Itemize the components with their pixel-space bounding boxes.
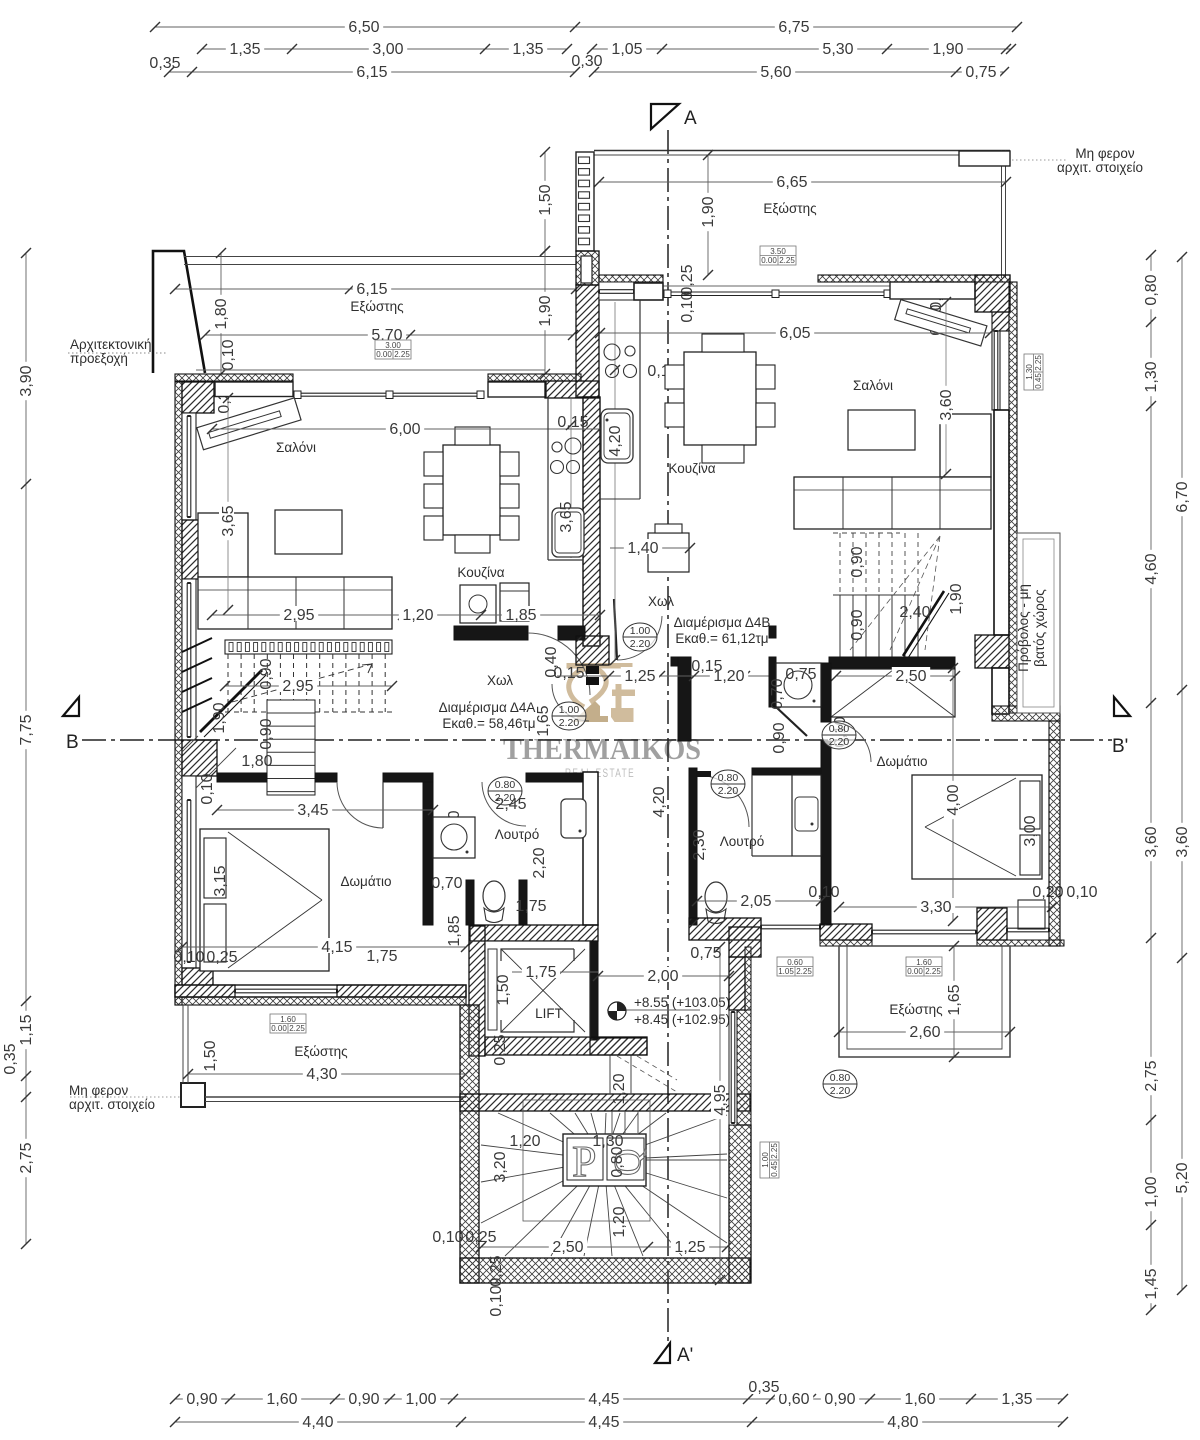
svg-text:3,90: 3,90 (18, 365, 35, 396)
svg-text:1,25: 1,25 (674, 1239, 705, 1256)
svg-text:7,75: 7,75 (18, 714, 35, 745)
svg-text:1,50: 1,50 (495, 974, 512, 1005)
svg-text:0.80: 0.80 (495, 779, 516, 791)
svg-text:3,45: 3,45 (297, 802, 328, 819)
svg-text:3,65: 3,65 (220, 505, 237, 536)
svg-text:1,60: 1,60 (266, 1391, 297, 1408)
svg-text:6,75: 6,75 (778, 19, 809, 36)
svg-text:1.60: 1.60 (916, 958, 932, 967)
svg-text:6,65: 6,65 (776, 174, 807, 191)
svg-text:1,00: 1,00 (1143, 1176, 1160, 1207)
svg-text:1,75: 1,75 (525, 964, 556, 981)
svg-text:1,90: 1,90 (537, 295, 554, 326)
svg-text:5,60: 5,60 (760, 64, 791, 81)
svg-text:1.00: 1.00 (630, 625, 651, 637)
svg-text:1.00: 1.00 (761, 1152, 770, 1168)
svg-text:1,80: 1,80 (241, 753, 272, 770)
svg-text:Εξώστης: Εξώστης (889, 1002, 943, 1017)
svg-text:4,80: 4,80 (887, 1414, 918, 1431)
svg-text:0.45: 0.45 (770, 1161, 779, 1177)
svg-text:0.60: 0.60 (787, 958, 803, 967)
svg-text:Διαμέρισμα Δ4Β: Διαμέρισμα Δ4Β (674, 615, 771, 630)
svg-text:4,45: 4,45 (588, 1414, 619, 1431)
svg-text:0,10: 0,10 (220, 339, 237, 370)
svg-text:Δωμάτιο: Δωμάτιο (877, 754, 928, 769)
svg-text:6,15: 6,15 (356, 281, 387, 298)
svg-text:2.25: 2.25 (394, 350, 410, 359)
svg-text:1,90: 1,90 (211, 702, 228, 733)
svg-text:0,10: 0,10 (432, 1229, 463, 1246)
svg-text:0,80: 0,80 (1143, 274, 1160, 305)
svg-text:2.20: 2.20 (630, 638, 651, 650)
svg-text:Λουτρό: Λουτρό (720, 834, 764, 849)
svg-text:1,75: 1,75 (366, 948, 397, 965)
svg-text:2.20: 2.20 (559, 717, 580, 729)
svg-text:3,60: 3,60 (938, 389, 955, 420)
svg-text:Εξώστης: Εξώστης (350, 299, 404, 314)
svg-text:βατός χώρος: βατός χώρος (1032, 589, 1047, 667)
svg-text:2.25: 2.25 (925, 967, 941, 976)
svg-text:6,05: 6,05 (779, 325, 810, 342)
svg-text:1,20: 1,20 (402, 607, 433, 624)
svg-text:5,20: 5,20 (1174, 1162, 1191, 1193)
svg-text:2.25: 2.25 (770, 1143, 779, 1159)
svg-text:A: A (684, 108, 697, 129)
svg-text:0,15: 0,15 (691, 658, 722, 675)
svg-text:2,95: 2,95 (283, 607, 314, 624)
svg-text:Σαλόνι: Σαλόνι (853, 378, 893, 393)
svg-text:2,30: 2,30 (691, 829, 708, 860)
svg-text:1,20: 1,20 (611, 1073, 628, 1104)
svg-text:1,15: 1,15 (18, 1014, 35, 1045)
svg-text:4,40: 4,40 (302, 1414, 333, 1431)
svg-text:1,50: 1,50 (202, 1040, 219, 1071)
svg-text:2,40: 2,40 (899, 604, 930, 621)
svg-text:0,40: 0,40 (543, 646, 560, 677)
svg-text:2,20: 2,20 (531, 847, 548, 878)
svg-text:Μη φερον: Μη φερον (1075, 146, 1134, 161)
svg-text:0,35: 0,35 (2, 1043, 19, 1074)
svg-text:0,90: 0,90 (186, 1391, 217, 1408)
svg-text:Χωλ: Χωλ (648, 594, 674, 609)
svg-text:0,75: 0,75 (785, 666, 816, 683)
svg-text:Πρόβολος - μη: Πρόβολος - μη (1016, 584, 1031, 672)
svg-text:Εξώστης: Εξώστης (294, 1044, 348, 1059)
svg-text:3,60: 3,60 (1143, 826, 1160, 857)
svg-text:2.25: 2.25 (1034, 355, 1043, 371)
svg-text:0,90: 0,90 (849, 546, 866, 577)
svg-text:2.25: 2.25 (779, 256, 795, 265)
svg-text:0,10: 0,10 (488, 1285, 505, 1316)
svg-text:1,20: 1,20 (509, 1133, 540, 1150)
svg-text:1.30: 1.30 (1025, 364, 1034, 380)
svg-text:1,05: 1,05 (611, 41, 642, 58)
svg-text:6,50: 6,50 (348, 19, 379, 36)
svg-text:0,25: 0,25 (206, 949, 237, 966)
svg-text:Χωλ: Χωλ (487, 673, 513, 688)
svg-text:1,40: 1,40 (627, 540, 658, 557)
svg-text:2,05: 2,05 (740, 893, 771, 910)
svg-text:1,25: 1,25 (624, 668, 655, 685)
svg-text:6,15: 6,15 (356, 64, 387, 81)
svg-text:0,25: 0,25 (679, 264, 696, 295)
svg-text:3,65: 3,65 (558, 501, 575, 532)
svg-text:Εκαθ.= 58,46τμ: Εκαθ.= 58,46τμ (442, 716, 535, 731)
svg-text:1,35: 1,35 (1001, 1391, 1032, 1408)
svg-text:1,90: 1,90 (948, 583, 965, 614)
svg-text:0,10: 0,10 (1066, 884, 1097, 901)
svg-text:2.20: 2.20 (829, 736, 850, 748)
svg-text:1,60: 1,60 (904, 1391, 935, 1408)
svg-text:4,60: 4,60 (1143, 553, 1160, 584)
svg-text:0,70: 0,70 (431, 875, 462, 892)
svg-text:2,75: 2,75 (1143, 1060, 1160, 1091)
svg-text:2.25: 2.25 (289, 1024, 305, 1033)
svg-text:0,90: 0,90 (348, 1391, 379, 1408)
svg-text:0,25: 0,25 (488, 1255, 505, 1286)
svg-text:0,35: 0,35 (149, 55, 180, 72)
svg-text:0.00: 0.00 (907, 967, 923, 976)
svg-text:0,10: 0,10 (173, 949, 204, 966)
svg-text:2.25: 2.25 (796, 967, 812, 976)
svg-text:2,45: 2,45 (495, 796, 526, 813)
svg-text:1,90: 1,90 (700, 196, 717, 227)
svg-text:1.00: 1.00 (559, 704, 580, 716)
svg-text:3,00: 3,00 (1022, 815, 1039, 846)
svg-text:1,65: 1,65 (535, 705, 552, 736)
svg-text:0,75: 0,75 (690, 945, 721, 962)
svg-text:1,20: 1,20 (611, 1206, 628, 1237)
svg-text:1,85: 1,85 (505, 607, 536, 624)
svg-text:1,90: 1,90 (932, 41, 963, 58)
svg-text:1,80: 1,80 (213, 298, 230, 329)
svg-text:2.20: 2.20 (830, 1085, 851, 1097)
svg-text:1,65: 1,65 (946, 984, 963, 1015)
svg-text:4,15: 4,15 (321, 939, 352, 956)
svg-text:Αρχιτεκτονική: Αρχιτεκτονική (70, 337, 152, 352)
svg-text:3,15: 3,15 (212, 865, 229, 896)
svg-text:+8.45 (+102.95): +8.45 (+102.95) (634, 1012, 730, 1027)
svg-text:1,85: 1,85 (446, 915, 463, 946)
svg-text:3.50: 3.50 (770, 247, 786, 256)
svg-text:Δωμάτιο: Δωμάτιο (341, 874, 392, 889)
svg-text:0,90: 0,90 (849, 609, 866, 640)
svg-text:5,30: 5,30 (822, 41, 853, 58)
svg-text:B: B (66, 732, 79, 753)
svg-text:προεξοχή: προεξοχή (70, 351, 128, 366)
svg-text:0,90: 0,90 (258, 658, 275, 689)
svg-text:2,95: 2,95 (282, 678, 313, 695)
svg-text:Κουζίνα: Κουζίνα (457, 565, 504, 580)
svg-text:Λουτρό: Λουτρό (495, 827, 539, 842)
svg-text:3,30: 3,30 (920, 899, 951, 916)
svg-text:1,35: 1,35 (229, 41, 260, 58)
svg-text:3,00: 3,00 (372, 41, 403, 58)
svg-text:0.00: 0.00 (271, 1024, 287, 1033)
svg-text:0,35: 0,35 (748, 1379, 779, 1396)
svg-text:1.05: 1.05 (778, 967, 794, 976)
svg-text:3,20: 3,20 (492, 1151, 509, 1182)
svg-text:A': A' (677, 1345, 693, 1366)
svg-text:αρχιτ. στοιχείο: αρχιτ. στοιχείο (1057, 160, 1143, 175)
svg-text:1,30: 1,30 (1143, 361, 1160, 392)
svg-text:4,20: 4,20 (651, 786, 668, 817)
svg-text:0,90: 0,90 (258, 718, 275, 749)
svg-text:2,50: 2,50 (895, 668, 926, 685)
svg-text:1.60: 1.60 (280, 1015, 296, 1024)
svg-text:0,75: 0,75 (965, 64, 996, 81)
svg-text:B': B' (1112, 736, 1128, 757)
svg-text:1,50: 1,50 (537, 184, 554, 215)
svg-text:+8.55 (+103.05): +8.55 (+103.05) (634, 995, 730, 1010)
svg-text:0,25: 0,25 (492, 1034, 509, 1065)
svg-text:0,25: 0,25 (465, 1229, 496, 1246)
svg-text:0,10: 0,10 (808, 884, 839, 901)
svg-text:3.00: 3.00 (385, 341, 401, 350)
svg-text:0,10: 0,10 (199, 773, 216, 804)
svg-text:0,70: 0,70 (769, 678, 786, 709)
svg-text:0.00: 0.00 (376, 350, 392, 359)
svg-text:0.80: 0.80 (718, 772, 739, 784)
svg-text:0.45: 0.45 (1034, 373, 1043, 389)
svg-text:6,00: 6,00 (389, 421, 420, 438)
svg-text:αρχιτ. στοιχείο: αρχιτ. στοιχείο (69, 1097, 155, 1112)
svg-text:3,60: 3,60 (1174, 826, 1191, 857)
svg-text:Εκαθ.= 61,12τμ: Εκαθ.= 61,12τμ (675, 631, 768, 646)
svg-text:4,30: 4,30 (306, 1066, 337, 1083)
svg-text:0,90: 0,90 (771, 722, 788, 753)
svg-text:2.20: 2.20 (718, 785, 739, 797)
svg-text:THERMAIKOS: THERMAIKOS (503, 731, 701, 766)
svg-text:2,75: 2,75 (18, 1142, 35, 1173)
svg-text:0,15: 0,15 (557, 414, 588, 431)
svg-text:1,45: 1,45 (1143, 1268, 1160, 1299)
svg-text:0.80: 0.80 (830, 1072, 851, 1084)
svg-text:2,60: 2,60 (909, 1024, 940, 1041)
svg-text:4,45: 4,45 (588, 1391, 619, 1408)
svg-text:1,00: 1,00 (405, 1391, 436, 1408)
svg-text:0,30: 0,30 (571, 53, 602, 70)
svg-text:2,00: 2,00 (647, 968, 678, 985)
svg-text:1,75: 1,75 (515, 898, 546, 915)
svg-text:4,95: 4,95 (712, 1084, 729, 1115)
svg-text:0.00: 0.00 (761, 256, 777, 265)
svg-text:4,00: 4,00 (945, 784, 962, 815)
svg-text:Σαλόνι: Σαλόνι (276, 440, 316, 455)
svg-text:Διαμέρισμα Δ4Α: Διαμέρισμα Δ4Α (439, 700, 536, 715)
svg-text:4,20: 4,20 (607, 425, 624, 456)
svg-text:6,70: 6,70 (1174, 481, 1191, 512)
svg-text:0,90: 0,90 (824, 1391, 855, 1408)
svg-text:1,35: 1,35 (512, 41, 543, 58)
svg-text:Εξώστης: Εξώστης (763, 201, 817, 216)
svg-text:LIFT: LIFT (535, 1006, 563, 1021)
svg-text:2,50: 2,50 (552, 1239, 583, 1256)
svg-text:0,80: 0,80 (609, 1146, 626, 1177)
svg-text:Μη φερον: Μη φερον (69, 1083, 128, 1098)
